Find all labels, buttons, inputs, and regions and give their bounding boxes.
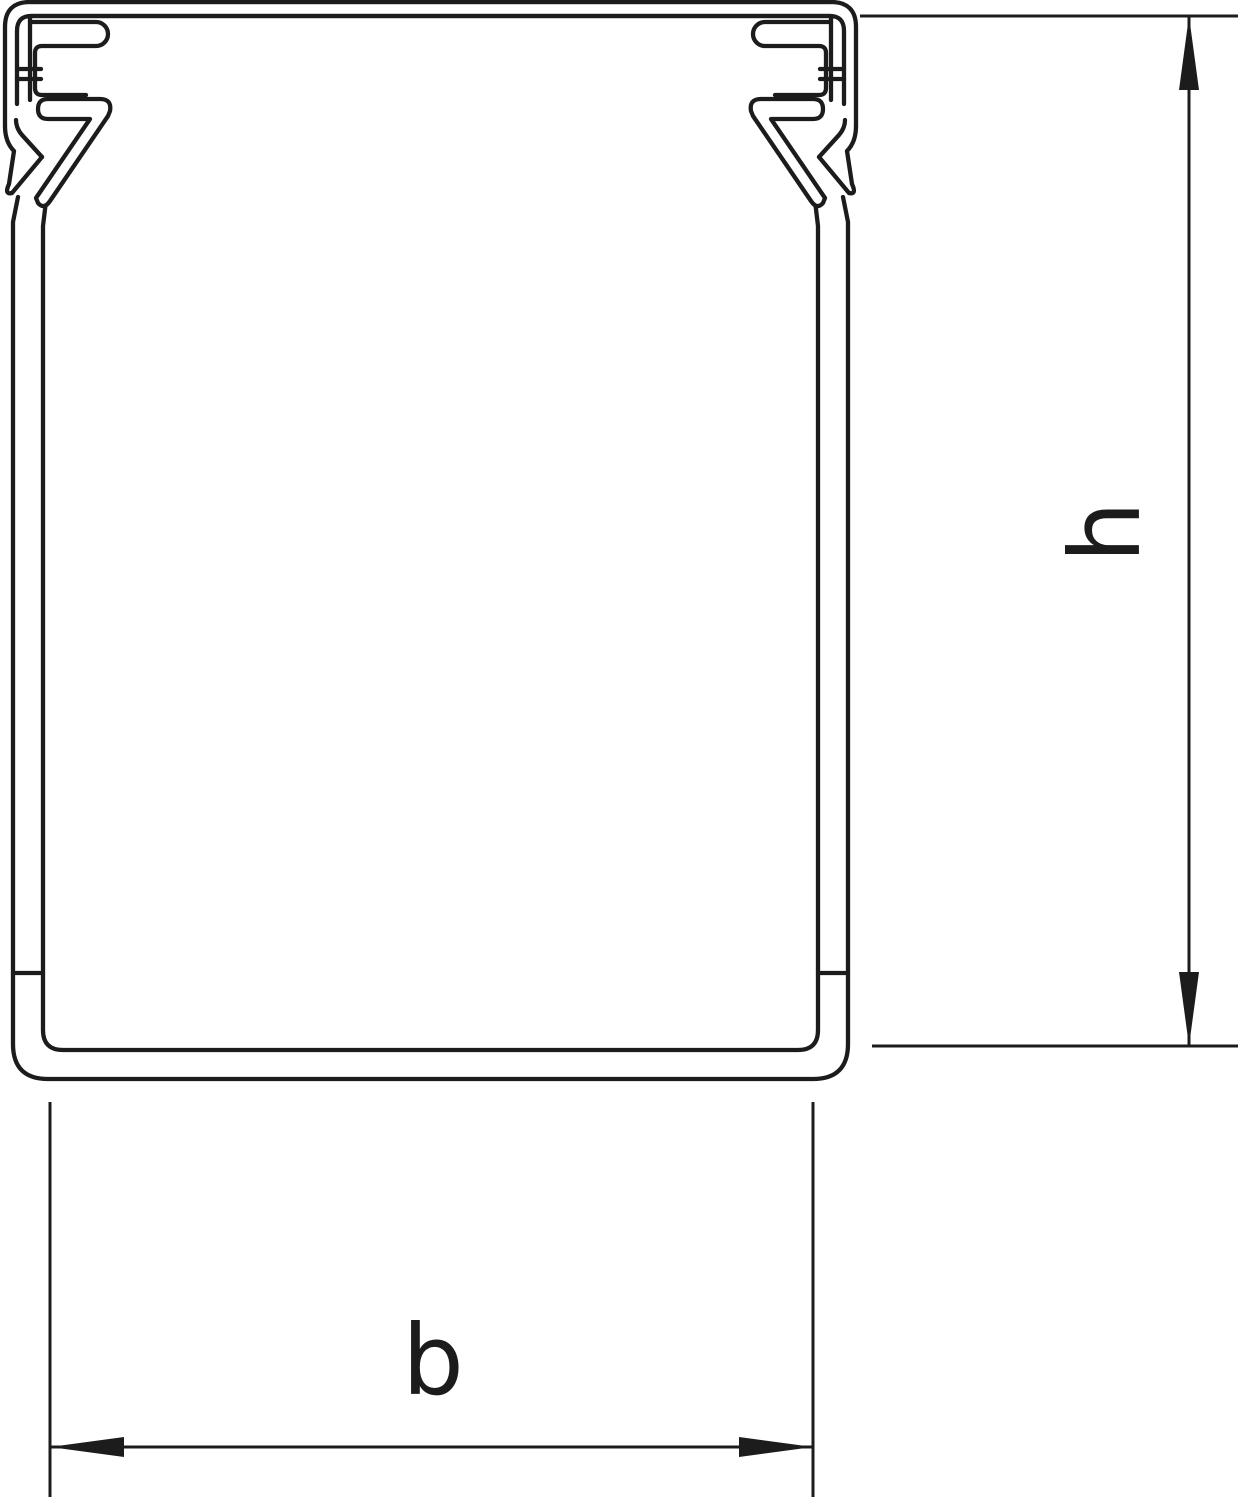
duct-body-profile [13,197,848,1079]
arrow-left-icon [50,1437,124,1457]
technical-drawing-svg: h b [0,0,1241,1500]
duct-inner-wall [43,201,818,1050]
retaining-flange-spur [751,99,825,206]
width-label: b [402,1304,464,1417]
cover-clip-right [30,2,856,206]
cover-top-edge [30,2,856,126]
cover-top-edge [5,2,831,126]
arrow-up-icon [1179,16,1199,90]
duct-cross-section-diagram: h b [0,0,1241,1500]
retaining-flange-spur [36,99,110,206]
height-label: h [1049,501,1162,562]
sidewall-c-channel [753,22,831,95]
cover-lip-spur-inner [16,120,42,157]
arrow-down-icon [1179,972,1199,1046]
cover-bottom-edge [30,16,844,104]
sidewall-c-channel [30,22,108,95]
cover-lip-spur-inner [819,120,845,157]
dimension-width [50,1102,813,1497]
arrow-right-icon [739,1437,813,1457]
cover-bottom-edge [17,16,831,104]
cover-clip-left [5,2,831,206]
duct-outer-wall [13,197,848,1079]
